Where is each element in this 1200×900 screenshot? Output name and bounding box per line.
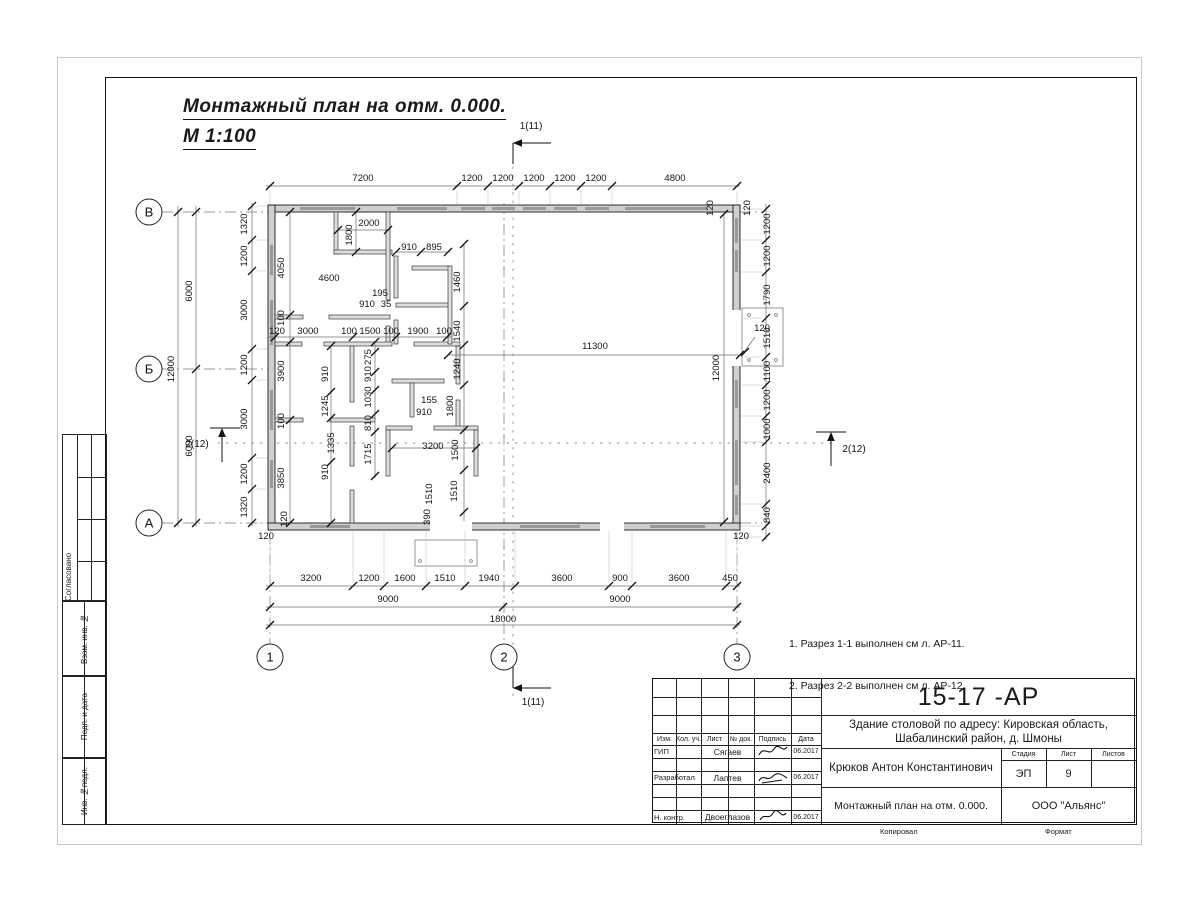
tb-stage-label: Стадия — [1001, 748, 1046, 760]
section-marker-label: 1(11) — [522, 697, 545, 708]
axis-bubble-label: А — [145, 516, 154, 531]
tb-doc-number: 15-17 -АР — [821, 679, 1136, 715]
margin-cell-sign-date: Подп. и дата — [62, 675, 107, 759]
dimension-label: 100 — [383, 326, 399, 337]
interior-wall — [410, 383, 414, 417]
dimension-label: 1600 — [394, 573, 415, 584]
wall-thickness-leader — [741, 337, 755, 356]
tb-stage-value: ЭП — [1001, 760, 1046, 787]
tb-date-developed: 06.2017 — [791, 771, 821, 784]
section-marker-label: 2(12) — [842, 444, 865, 455]
tb-col-date: Дата — [791, 733, 821, 745]
interior-wall — [386, 212, 390, 300]
entrance-opening — [430, 522, 472, 531]
interior-wall — [456, 400, 460, 430]
axis-bubble-label: 2 — [500, 650, 507, 665]
dimension-label: 100 — [341, 326, 357, 337]
dimension-label: 1320 — [239, 496, 250, 517]
dimension-label: 910 — [320, 366, 331, 382]
axis-bubble-label: 3 — [733, 650, 740, 665]
dimension-label: 18000 — [490, 614, 516, 625]
dimension-label: 7200 — [352, 173, 373, 184]
title-block: Изм. Кол. уч. Лист № док. Подпись Дата Г… — [652, 678, 1135, 823]
dimension-label: 390 — [422, 509, 433, 525]
dimension-label: 1200 — [492, 173, 513, 184]
dimension-label: 3600 — [668, 573, 689, 584]
interior-wall — [334, 250, 392, 254]
axis-bubble-label: 1 — [266, 650, 273, 665]
section-marker-1-bottom — [513, 666, 551, 692]
tb-col-izm: Изм. — [653, 733, 676, 745]
axis-bubble-label: Б — [145, 362, 154, 377]
dimension-label: 4050 — [276, 257, 287, 278]
dimension-label: 120 — [742, 200, 753, 216]
tb-sheets-label: Листов — [1091, 748, 1136, 760]
tb-col-kol: Кол. уч. — [676, 733, 701, 745]
dimension-label: 12000 — [166, 356, 177, 382]
dimension-label: 11300 — [582, 341, 608, 352]
dimension-label: 1200 — [358, 573, 379, 584]
interior-wall — [392, 379, 444, 383]
dimension-label: 3850 — [276, 467, 287, 488]
dimension-label: 895 — [426, 242, 442, 253]
dimension-label: 1200 — [762, 213, 773, 234]
drawing-sheet: Монтажный план на отм. 0.000. М 1:100 1.… — [0, 0, 1200, 900]
margin-cell-replace-inv: Взам. инв. № — [62, 600, 107, 677]
interior-wall — [412, 266, 450, 270]
dimension-label: 1500 — [359, 326, 380, 337]
dimension-label: 120 — [705, 200, 716, 216]
tb-project-line1: Здание столовой по адресу: Кировская обл… — [849, 718, 1108, 732]
interior-wall — [350, 426, 354, 466]
dimension-label: 910 — [359, 299, 375, 310]
dimension-label: 35 — [381, 299, 392, 310]
tb-copied-label: Копировал — [880, 827, 918, 836]
section-marker-label: 2(12) — [185, 439, 208, 450]
dimension-label: 910 — [401, 242, 417, 253]
dimension-label: 1510 — [424, 483, 435, 504]
dimension-label: 910 — [320, 464, 331, 480]
dimension-label: 6000 — [184, 280, 195, 301]
dimension-label: 1790 — [762, 284, 773, 305]
dimension-label: 120 — [269, 326, 285, 337]
dimension-label: 1245 — [320, 395, 331, 416]
tb-name-gip: Сягаев — [701, 745, 754, 758]
section-marker-1-top — [513, 139, 551, 164]
dimension-label: 840 — [762, 507, 773, 523]
interior-wall — [414, 342, 460, 346]
dimension-label: 1940 — [478, 573, 499, 584]
dimension-label: 1200 — [239, 463, 250, 484]
tb-format-label: Формат — [1045, 827, 1072, 836]
dimension-label: 1800 — [445, 395, 456, 416]
margin-cell-approved: Согласовано — [62, 434, 107, 602]
dimension-label: 3000 — [239, 299, 250, 320]
dimension-label: 155 — [421, 395, 437, 406]
dimension-label: 3200 — [422, 441, 443, 452]
dimension-label: 1500 — [450, 439, 461, 460]
signature — [756, 807, 790, 825]
dimension-label: 1460 — [452, 271, 463, 292]
tb-name-developed: Лаптев — [701, 771, 754, 784]
signature — [756, 769, 790, 787]
dimension-label: 1200 — [762, 245, 773, 266]
interior-wall — [329, 315, 390, 319]
dimension-label: 1200 — [523, 173, 544, 184]
dimension-label: 1200 — [461, 173, 482, 184]
tb-project-line2: Шабалинский район, д. Шмоны — [895, 732, 1062, 746]
dimension-label: 450 — [722, 573, 738, 584]
interior-walls — [275, 212, 478, 523]
dimension-label: 1900 — [407, 326, 428, 337]
tb-date-ncontrol: 06.2017 — [791, 810, 821, 824]
dimension-label: 275 — [363, 349, 374, 365]
dimension-label: 120 — [258, 531, 274, 542]
dimension-label: 3900 — [276, 360, 287, 381]
interior-wall — [474, 430, 478, 476]
interior-wall — [396, 303, 450, 307]
axis-bubble-label: В — [145, 205, 154, 220]
dimension-label: 100 — [436, 326, 452, 337]
dimension-label: 3000 — [297, 326, 318, 337]
dimension-label: 1200 — [239, 354, 250, 375]
dimension-label: 1320 — [239, 213, 250, 234]
tb-role-developed: Разработал — [654, 771, 700, 784]
tb-sheet-label: Лист — [1046, 748, 1091, 760]
dimension-label: 120 — [733, 531, 749, 542]
tb-role-ncontrol: Н. контр. — [654, 810, 700, 824]
dimension-label: 120 — [754, 323, 770, 334]
tb-role-gip: ГИП — [654, 745, 676, 758]
dimension-label: 1335 — [326, 432, 337, 453]
dimension-label: 1200 — [554, 173, 575, 184]
tb-sheet-title: Монтажный план на отм. 0.000. — [821, 787, 1001, 824]
dimension-label: 2000 — [358, 218, 379, 229]
dimension-label: 9000 — [609, 594, 630, 605]
dimension-label: 1540 — [452, 320, 463, 341]
dimension-label: 4600 — [318, 273, 339, 284]
dimension-label: 100 — [276, 413, 287, 429]
tb-sheets-value — [1091, 760, 1136, 787]
tb-date-gip: 06.2017 — [791, 745, 821, 758]
margin-cell-inv-original: Инв. №подл. — [62, 757, 107, 825]
dimension-label: 195 — [372, 288, 388, 299]
dimension-label: 1000 — [762, 418, 773, 439]
section-marker-2-left — [210, 428, 240, 462]
dimension-label: 3000 — [239, 408, 250, 429]
dimension-label: 1100 — [762, 361, 773, 381]
interior-wall — [350, 490, 354, 523]
dimension-label: 12000 — [711, 355, 722, 381]
dimension-label: 1800 — [344, 224, 355, 245]
tb-col-list: Лист — [701, 733, 728, 745]
interior-wall — [434, 426, 478, 430]
interior-wall — [386, 426, 412, 430]
door-opening — [600, 522, 624, 531]
section-marker-label: 1(11) — [520, 121, 543, 132]
dimension-label: 910 — [363, 366, 374, 382]
dimension-label: 1030 — [363, 386, 374, 407]
dimension-label: 100 — [276, 310, 287, 326]
section-cut-lines — [218, 150, 836, 696]
dimension-label: 3600 — [551, 573, 572, 584]
interior-wall — [350, 346, 354, 402]
dimension-label: 9000 — [377, 594, 398, 605]
dimension-labels: 7200120012001200120012004800120120132012… — [166, 173, 773, 625]
dimension-label: 1715 — [363, 443, 374, 464]
plan-walls — [268, 205, 741, 531]
tb-sheet-value: 9 — [1046, 760, 1091, 787]
margin-label-approved: Согласовано — [64, 435, 73, 601]
dimension-label: 120 — [279, 511, 290, 527]
dimension-label: 1200 — [585, 173, 606, 184]
tb-col-doc: № док. — [728, 733, 754, 745]
dimension-label: 3200 — [300, 573, 321, 584]
interior-wall — [394, 256, 398, 298]
interior-wall — [386, 430, 390, 476]
dimension-label: 1510 — [434, 573, 455, 584]
dimension-label: 900 — [612, 573, 628, 584]
tb-name-ncontrol: Двоеглазов — [701, 810, 754, 824]
tb-project-name: Здание столовой по адресу: Кировская обл… — [821, 715, 1136, 748]
tb-company: ООО "Альянс" — [1001, 787, 1136, 824]
signature — [756, 742, 790, 760]
dimension-label: 1510 — [449, 480, 460, 501]
dimension-label: 810 — [363, 415, 374, 431]
dimension-label: 4800 — [664, 173, 685, 184]
dimension-label: 910 — [416, 407, 432, 418]
dimension-label: 1200 — [239, 245, 250, 266]
dimension-label: 1240 — [452, 358, 463, 379]
dimension-label: 1200 — [762, 389, 773, 410]
dimension-label: 2400 — [762, 462, 773, 483]
tb-chief-name: Крюков Антон Константинович — [821, 748, 1001, 787]
